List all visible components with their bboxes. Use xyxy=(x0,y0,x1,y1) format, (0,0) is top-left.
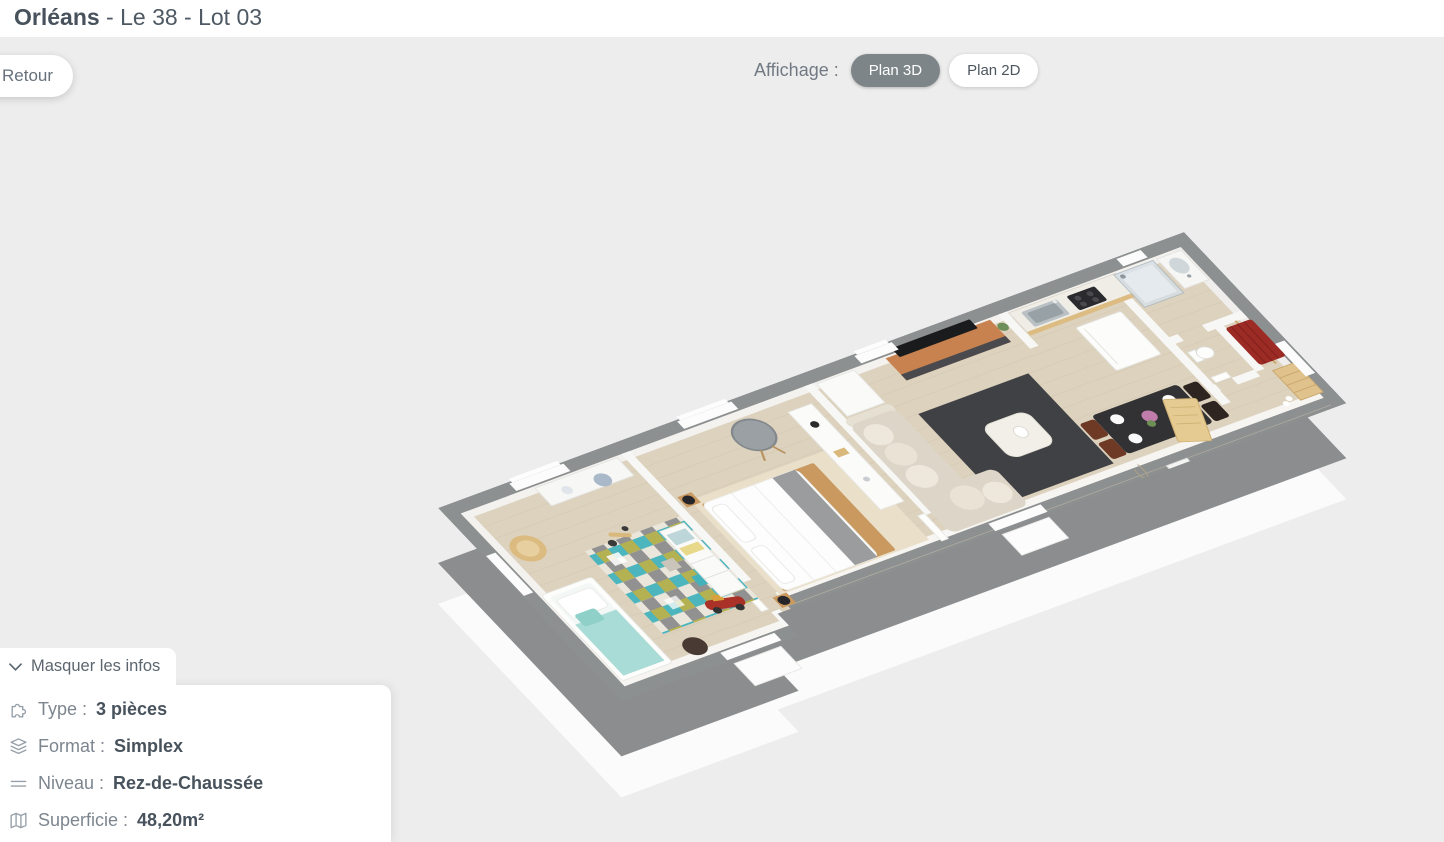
map-icon xyxy=(8,810,29,831)
hide-info-toggle[interactable]: Masquer les infos xyxy=(0,648,176,685)
layers-icon xyxy=(8,736,29,757)
chevron-down-icon xyxy=(9,663,22,671)
plan-2d-button[interactable]: Plan 2D xyxy=(949,54,1038,87)
info-label: Niveau : xyxy=(38,773,104,794)
level-icon xyxy=(8,773,29,794)
lot-subtitle: - Le 38 - Lot 03 xyxy=(100,4,262,30)
puzzle-icon xyxy=(8,699,29,720)
info-row-type: Type : 3 pièces xyxy=(0,691,391,728)
project-name: Orléans xyxy=(14,4,100,30)
app-root: Orléans - Le 38 - Lot 03 Retour Affichag… xyxy=(0,0,1444,842)
info-value: 3 pièces xyxy=(96,699,167,720)
info-label: Format : xyxy=(38,736,105,757)
info-value: 48,20m² xyxy=(137,810,204,831)
info-row-niveau: Niveau : Rez-de-Chaussée xyxy=(0,765,391,802)
info-label: Superficie : xyxy=(38,810,128,831)
display-label: Affichage : xyxy=(754,60,839,81)
info-value: Rez-de-Chaussée xyxy=(113,773,263,794)
info-label: Type : xyxy=(38,699,87,720)
info-row-format: Format : Simplex xyxy=(0,728,391,765)
info-panel: Type : 3 pièces Format : Simplex Niveau … xyxy=(0,685,391,842)
info-row-superficie: Superficie : 48,20m² xyxy=(0,802,391,839)
info-value: Simplex xyxy=(114,736,183,757)
hide-info-label: Masquer les infos xyxy=(31,657,160,676)
page-title: Orléans - Le 38 - Lot 03 xyxy=(0,0,1444,32)
display-toggle: Affichage : Plan 3D Plan 2D xyxy=(754,50,1038,90)
back-button[interactable]: Retour xyxy=(0,55,73,97)
header: Orléans - Le 38 - Lot 03 xyxy=(0,0,1444,37)
plan-3d-button[interactable]: Plan 3D xyxy=(851,54,940,87)
